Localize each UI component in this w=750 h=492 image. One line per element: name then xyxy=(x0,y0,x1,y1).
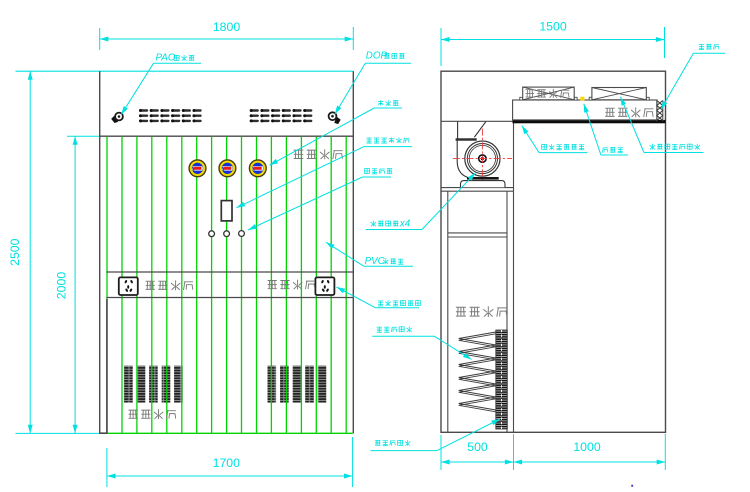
svg-text:2500: 2500 xyxy=(8,238,22,266)
svg-text:PAO: PAO xyxy=(156,53,176,64)
svg-text:500: 500 xyxy=(467,440,488,454)
svg-text:1800: 1800 xyxy=(213,20,241,34)
svg-text:1700: 1700 xyxy=(213,456,241,470)
svg-text:x4: x4 xyxy=(399,218,411,229)
svg-text:2000: 2000 xyxy=(55,272,69,300)
svg-text:1500: 1500 xyxy=(539,20,567,34)
svg-text:1000: 1000 xyxy=(573,440,601,454)
svg-text:PVC: PVC xyxy=(365,256,386,267)
